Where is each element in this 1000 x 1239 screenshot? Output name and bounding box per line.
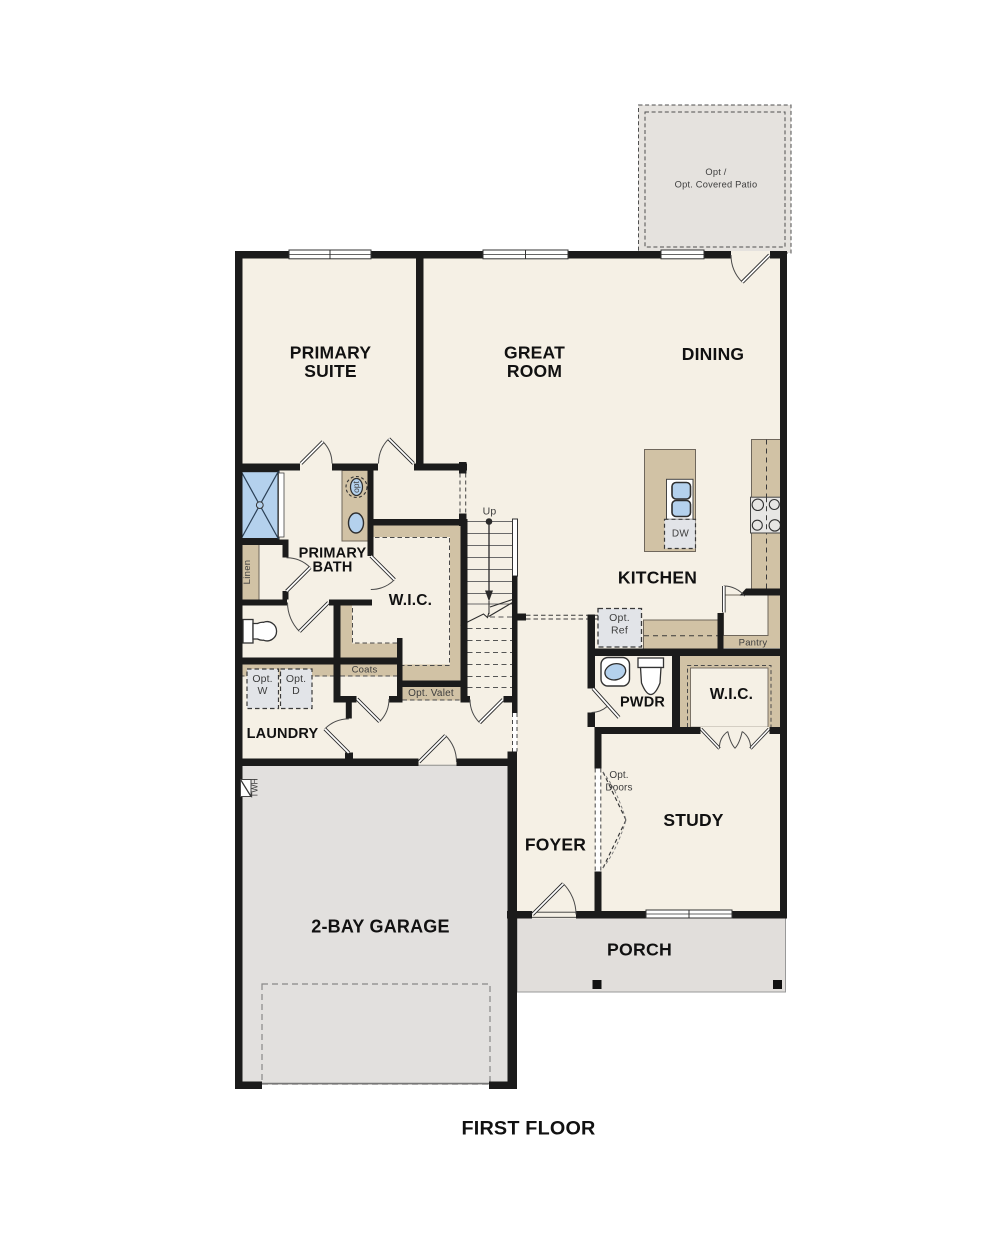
svg-text:Linen: Linen <box>242 560 253 585</box>
svg-text:STUDY: STUDY <box>663 810 723 830</box>
svg-text:2-BAY GARAGE: 2-BAY GARAGE <box>311 917 449 937</box>
svg-text:Coats: Coats <box>352 665 378 676</box>
svg-text:Ref: Ref <box>611 625 628 637</box>
svg-text:GREAT: GREAT <box>504 343 565 363</box>
svg-text:Opt.: Opt. <box>609 612 630 624</box>
svg-text:KITCHEN: KITCHEN <box>618 568 697 588</box>
svg-text:W.I.C.: W.I.C. <box>389 592 432 609</box>
svg-text:Up: Up <box>483 506 497 518</box>
svg-text:Opt. Valet: Opt. Valet <box>408 688 454 699</box>
svg-text:Doors: Doors <box>605 783 632 794</box>
svg-text:Pantry: Pantry <box>739 638 768 649</box>
svg-text:PORCH: PORCH <box>607 940 672 960</box>
svg-text:LAUNDRY: LAUNDRY <box>247 726 319 742</box>
svg-text:FOYER: FOYER <box>525 835 586 855</box>
svg-text:W.I.C.: W.I.C. <box>710 686 753 703</box>
svg-text:FIRST FLOOR: FIRST FLOOR <box>461 1118 595 1140</box>
svg-text:opt: opt <box>351 480 361 492</box>
svg-text:DW: DW <box>672 529 690 540</box>
svg-text:ROOM: ROOM <box>507 361 562 381</box>
svg-text:TWH: TWH <box>250 778 260 797</box>
svg-text:Opt.: Opt. <box>252 673 272 685</box>
svg-text:PWDR: PWDR <box>620 695 665 711</box>
svg-text:Opt.: Opt. <box>609 770 628 781</box>
svg-text:SUITE: SUITE <box>304 361 357 381</box>
svg-text:W: W <box>257 685 267 697</box>
svg-text:Opt.: Opt. <box>286 673 306 685</box>
svg-text:Opt. Covered Patio: Opt. Covered Patio <box>675 180 758 190</box>
svg-text:PRIMARY: PRIMARY <box>290 343 372 363</box>
svg-text:D: D <box>292 685 300 697</box>
svg-text:BATH: BATH <box>313 560 353 576</box>
svg-text:Opt /: Opt / <box>705 167 726 177</box>
svg-text:DINING: DINING <box>682 344 744 364</box>
